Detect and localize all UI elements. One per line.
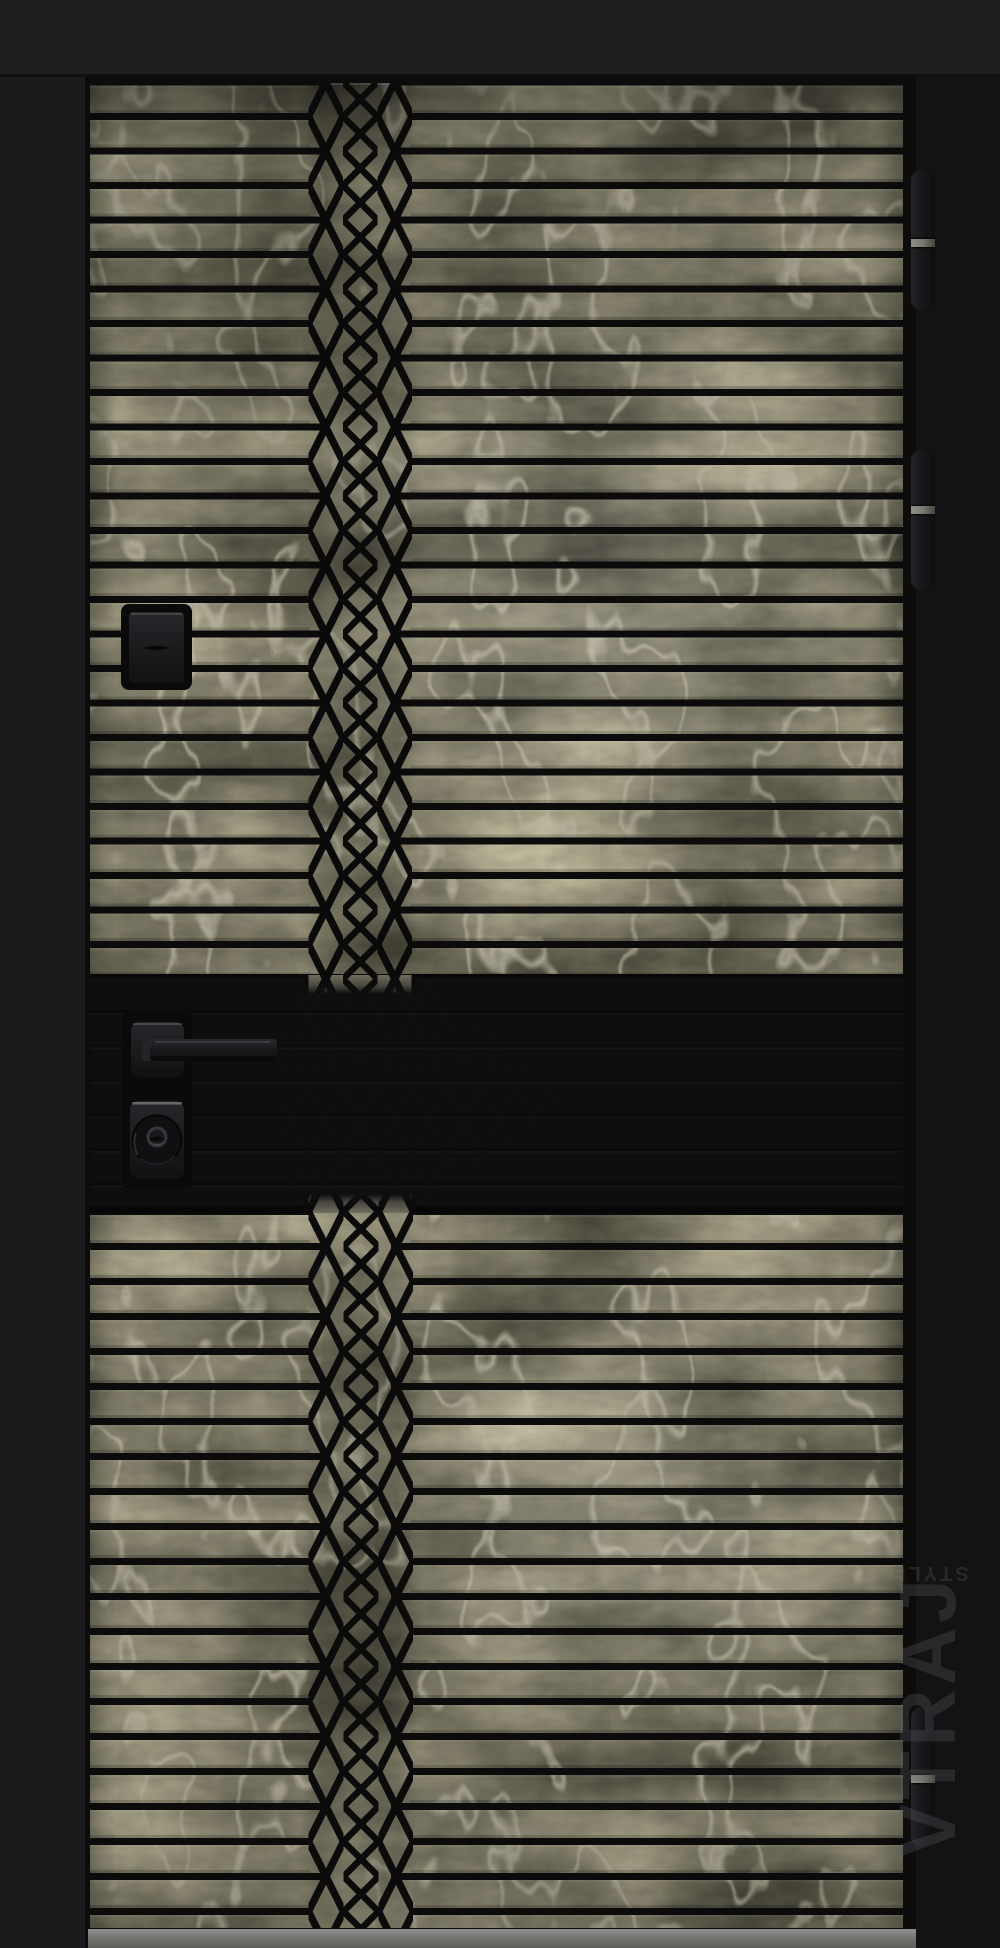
svg-text:VTRAJ: VTRAJ <box>883 1575 972 1857</box>
svg-text:STYLE: STYLE <box>889 1562 968 1584</box>
